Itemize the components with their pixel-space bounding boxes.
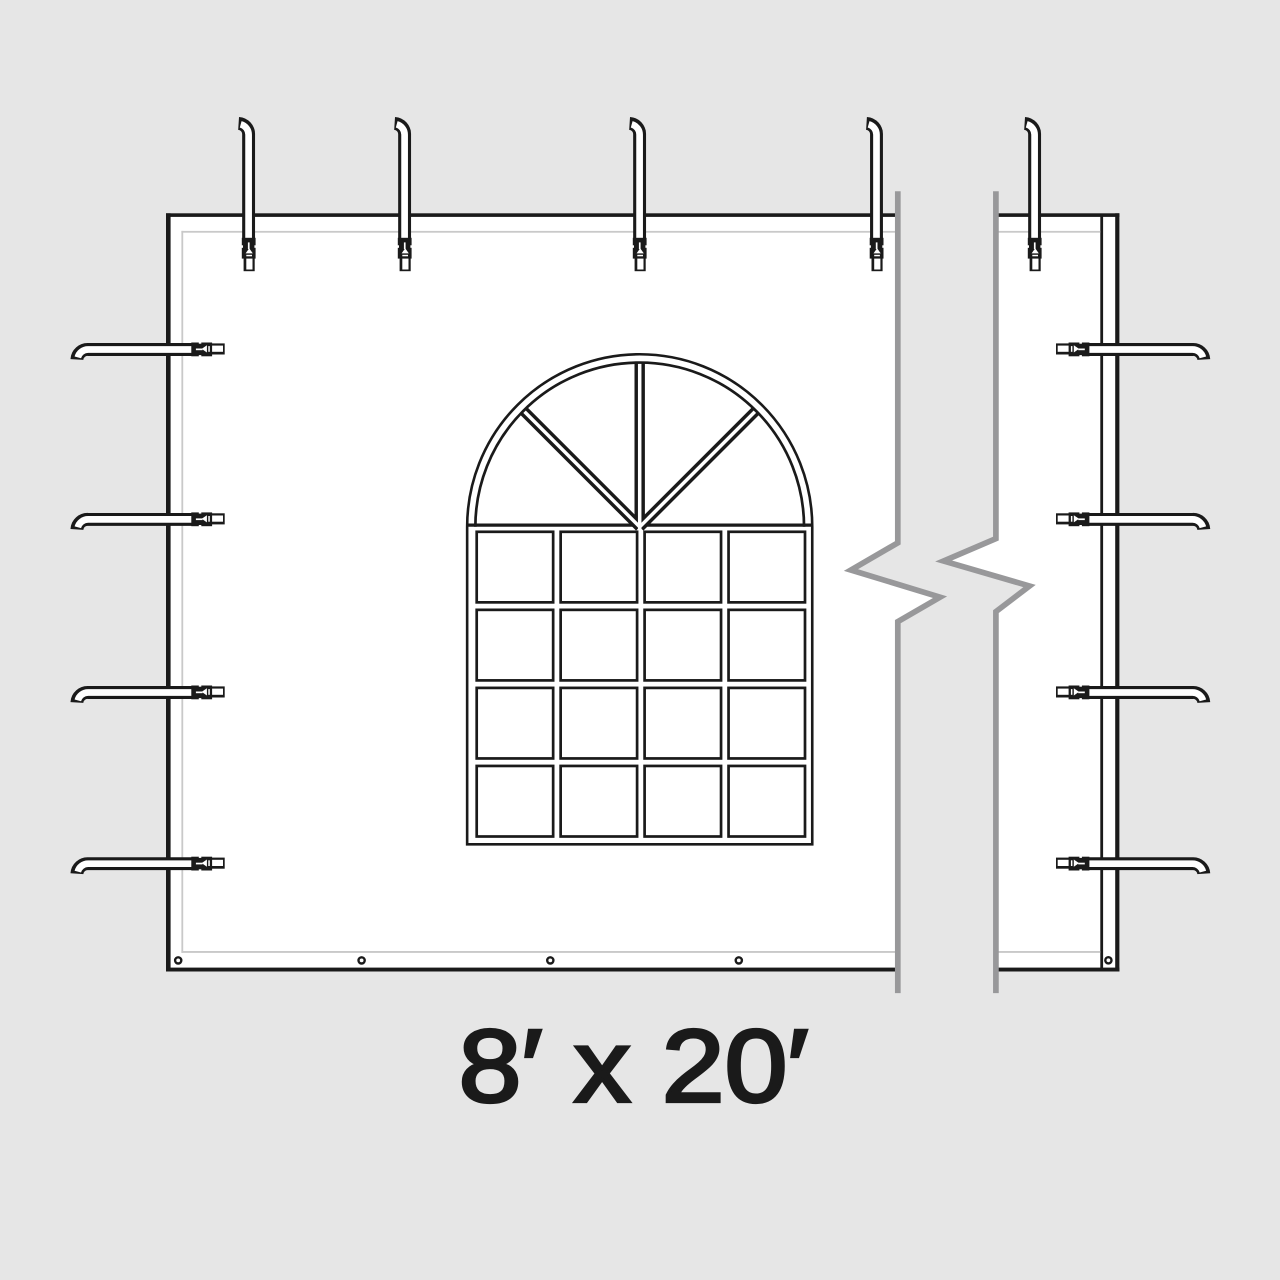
svg-text:8′ x 20′: 8′ x 20′: [459, 1008, 809, 1123]
